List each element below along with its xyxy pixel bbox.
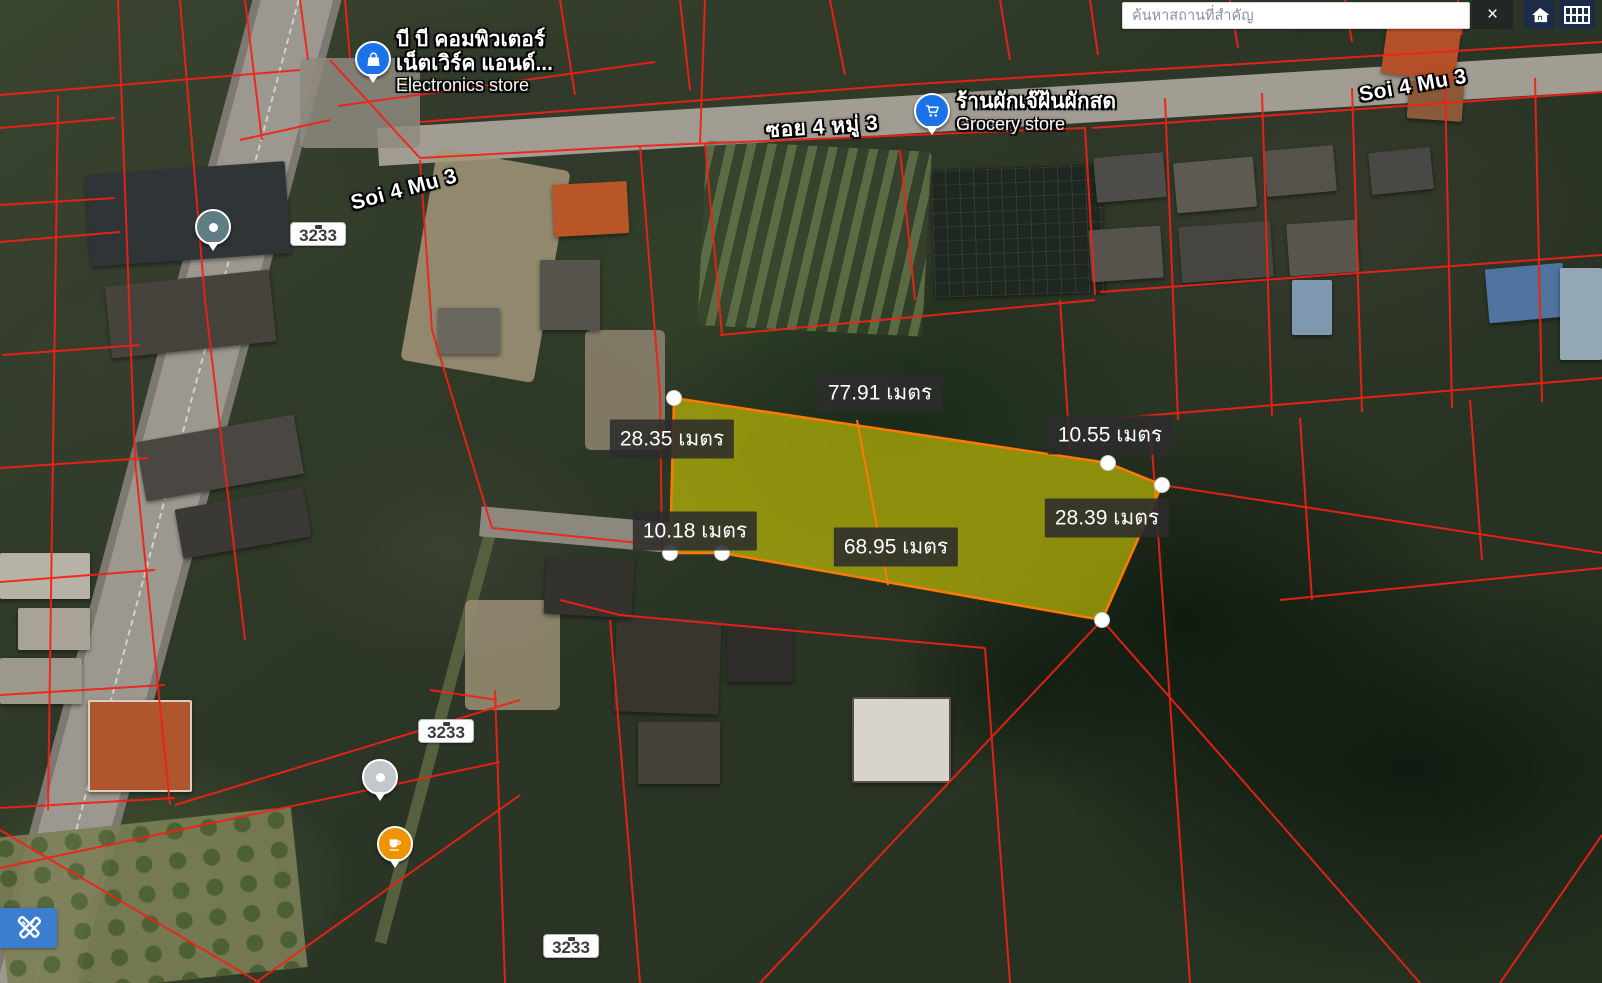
close-icon[interactable]: × <box>1472 0 1513 29</box>
poi-name: บี บี คอมพิวเตอร์ <box>396 28 553 52</box>
route-number: 3233 <box>427 723 465 742</box>
poi-name: ร้านผักเจ๊ฝ้นผักสด <box>956 90 1116 114</box>
route-number: 3233 <box>552 938 590 957</box>
home-icon[interactable] <box>1524 0 1555 29</box>
poi-category: Grocery store <box>956 114 1116 134</box>
measurement-label: 10.18 เมตร <box>633 512 757 551</box>
shopping-bag-icon[interactable] <box>355 41 391 77</box>
search-bar <box>1122 2 1470 29</box>
measurement-label: 28.39 เมตร <box>1045 499 1169 538</box>
pin-tail <box>367 74 379 83</box>
road-label: ซอย 4 หมู่ 3 <box>765 107 880 148</box>
pin-tail <box>926 126 938 135</box>
route-number: 3233 <box>299 226 337 245</box>
measurement-label: 68.95 เมตร <box>834 528 958 567</box>
shopping-cart-icon[interactable] <box>914 93 950 129</box>
poi-text[interactable]: บี บี คอมพิวเตอร์เน็ตเวิร์ค แอนด์...Elec… <box>396 28 553 95</box>
closed-pin-icon[interactable] <box>362 759 398 795</box>
measure-tool-button[interactable] <box>0 908 57 948</box>
generic-pin-icon[interactable] <box>195 209 231 245</box>
route-shield: 3233 <box>290 222 346 246</box>
home-glyph <box>1530 5 1550 25</box>
poi-category: Electronics store <box>396 75 553 95</box>
pin-tail <box>207 242 219 251</box>
road-label: Soi 4 Mu 3 <box>1357 65 1468 108</box>
route-shield: 3233 <box>543 934 599 958</box>
map-canvas[interactable]: Soi 4 Mu 3ซอย 4 หมู่ 3Soi 4 Mu 332333233… <box>0 0 1602 983</box>
measurement-label: 77.91 เมตร <box>818 374 942 413</box>
road-label: Soi 4 Mu 3 <box>348 164 459 215</box>
poi-text[interactable]: ร้านผักเจ๊ฝ้นผักสดGrocery store <box>956 90 1116 134</box>
measurement-label: 10.55 เมตร <box>1048 416 1172 455</box>
close-glyph: × <box>1487 4 1498 26</box>
grid-glyph <box>1564 6 1590 24</box>
grid-icon[interactable] <box>1559 0 1595 29</box>
measure-tool-icon <box>14 913 44 943</box>
measurement-label: 28.35 เมตร <box>610 420 734 459</box>
cafe-icon[interactable] <box>377 826 413 862</box>
poi-name: เน็ตเวิร์ค แอนด์... <box>396 52 553 76</box>
search-input[interactable] <box>1122 2 1470 29</box>
labels-layer: Soi 4 Mu 3ซอย 4 หมู่ 3Soi 4 Mu 332333233… <box>0 0 1602 983</box>
route-shield: 3233 <box>418 719 474 743</box>
pin-tail <box>374 792 386 801</box>
pin-tail <box>389 859 401 868</box>
